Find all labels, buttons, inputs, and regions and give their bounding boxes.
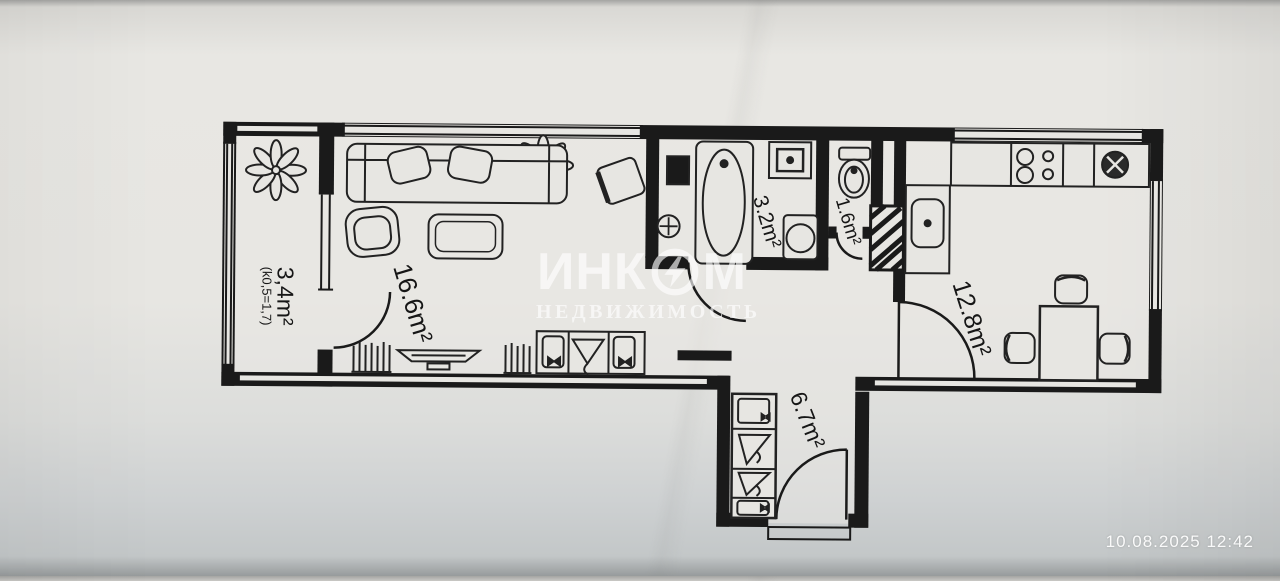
- wall-wc-bottom-a: [828, 226, 836, 238]
- wardrobe-icon: [536, 331, 644, 375]
- window-icon: [953, 127, 1143, 142]
- wall-corridor-pier: [678, 350, 732, 360]
- window-icon: [318, 193, 334, 289]
- wall-hall-left: [716, 376, 730, 527]
- wall-inset: [237, 126, 317, 132]
- balcony-area-label: 3,4m² (k0,5=1,7): [259, 267, 296, 326]
- sofa-icon: [347, 144, 567, 204]
- toilet-icon: [839, 148, 870, 198]
- photo-timestamp: 10.08.2025 12:42: [1106, 532, 1254, 552]
- appliance-icon: [1102, 152, 1128, 178]
- chair-icon: [1005, 333, 1035, 363]
- ventilation-shaft: [870, 206, 904, 270]
- chair-icon: [1100, 334, 1130, 364]
- floor-plan-photo: { "photo": { "timestamp": "10.08.2025 12…: [0, 0, 1280, 576]
- wall-hall-right: [854, 392, 869, 528]
- window-icon: [1149, 180, 1163, 310]
- balcony-coefficient: (k0,5=1,7): [259, 267, 273, 326]
- bathtub-icon: [695, 141, 753, 263]
- flower-plant-icon: [246, 140, 306, 200]
- water-heater-icon: [667, 156, 689, 184]
- wall-wc-right: [871, 140, 884, 206]
- floor-plan-linework: [0, 0, 1280, 581]
- wardrobe-icon: [731, 394, 776, 518]
- chair-icon: [1055, 275, 1087, 303]
- armchair-icon: [344, 205, 400, 258]
- floor-plan-drawing: 16.6m² 3.2m² 1.6m² 12.8m² 6.7m² 3,4m² (k…: [0, 0, 1280, 581]
- wall-balcony-partition-top: [319, 122, 335, 193]
- washbasin-icon: [783, 215, 817, 259]
- floor-drain-icon: [657, 215, 679, 237]
- wall-living-bath: [645, 138, 659, 258]
- dining-table-icon: [1039, 306, 1098, 380]
- washing-machine-icon: [769, 142, 811, 178]
- wall-bath-bottom-a: [645, 256, 688, 269]
- entrance-threshold: [768, 527, 850, 540]
- balcony-area-value: 3,4m²: [272, 267, 298, 326]
- kitchen-sink-icon: [905, 185, 950, 273]
